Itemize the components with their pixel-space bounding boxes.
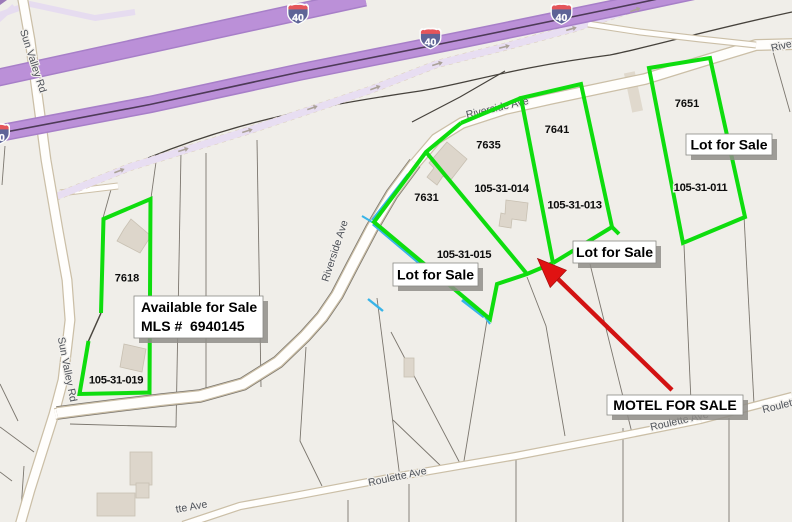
svg-text:7618: 7618 — [115, 273, 139, 285]
svg-text:40: 40 — [556, 12, 568, 24]
svg-text:Lot for Sale: Lot for Sale — [690, 137, 767, 153]
svg-text:Lot for Sale: Lot for Sale — [576, 244, 653, 260]
svg-text:40: 40 — [425, 37, 437, 49]
svg-text:105-31-015: 105-31-015 — [437, 249, 491, 261]
svg-text:7635: 7635 — [476, 140, 500, 152]
svg-text:MOTEL FOR SALE: MOTEL FOR SALE — [613, 397, 736, 413]
svg-text:Available for Sale: Available for Sale — [141, 299, 257, 315]
svg-text:40: 40 — [0, 132, 5, 144]
svg-text:40: 40 — [292, 12, 304, 24]
svg-text:7651: 7651 — [675, 98, 699, 110]
svg-text:105-31-013: 105-31-013 — [547, 200, 601, 212]
svg-text:105-31-014: 105-31-014 — [474, 183, 529, 195]
svg-text:Lot for Sale: Lot for Sale — [397, 267, 474, 283]
svg-text:105-31-019: 105-31-019 — [89, 375, 143, 387]
svg-text:7641: 7641 — [545, 124, 569, 136]
svg-text:105-31-011: 105-31-011 — [674, 182, 728, 194]
svg-text:7631: 7631 — [414, 192, 438, 204]
svg-text:MLS # 6940145: MLS # 6940145 — [141, 318, 245, 334]
